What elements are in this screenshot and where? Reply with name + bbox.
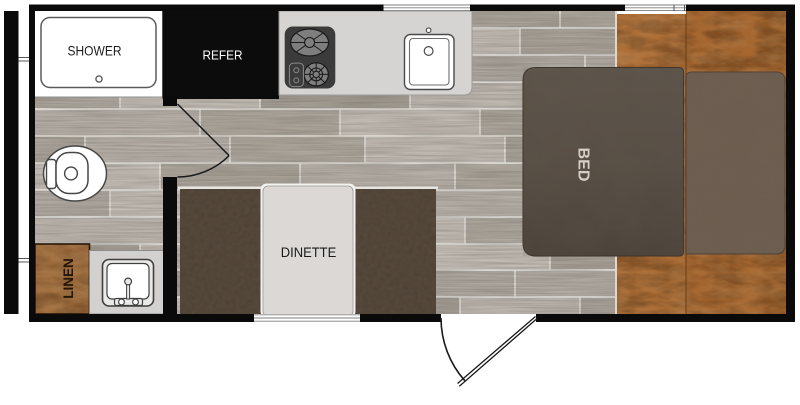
svg-text:REFER: REFER xyxy=(203,48,243,63)
svg-text:SHOWER: SHOWER xyxy=(68,44,122,59)
svg-text:DINETTE: DINETTE xyxy=(281,244,337,260)
svg-text:BED: BED xyxy=(575,148,592,182)
svg-text:LINEN: LINEN xyxy=(61,258,76,299)
